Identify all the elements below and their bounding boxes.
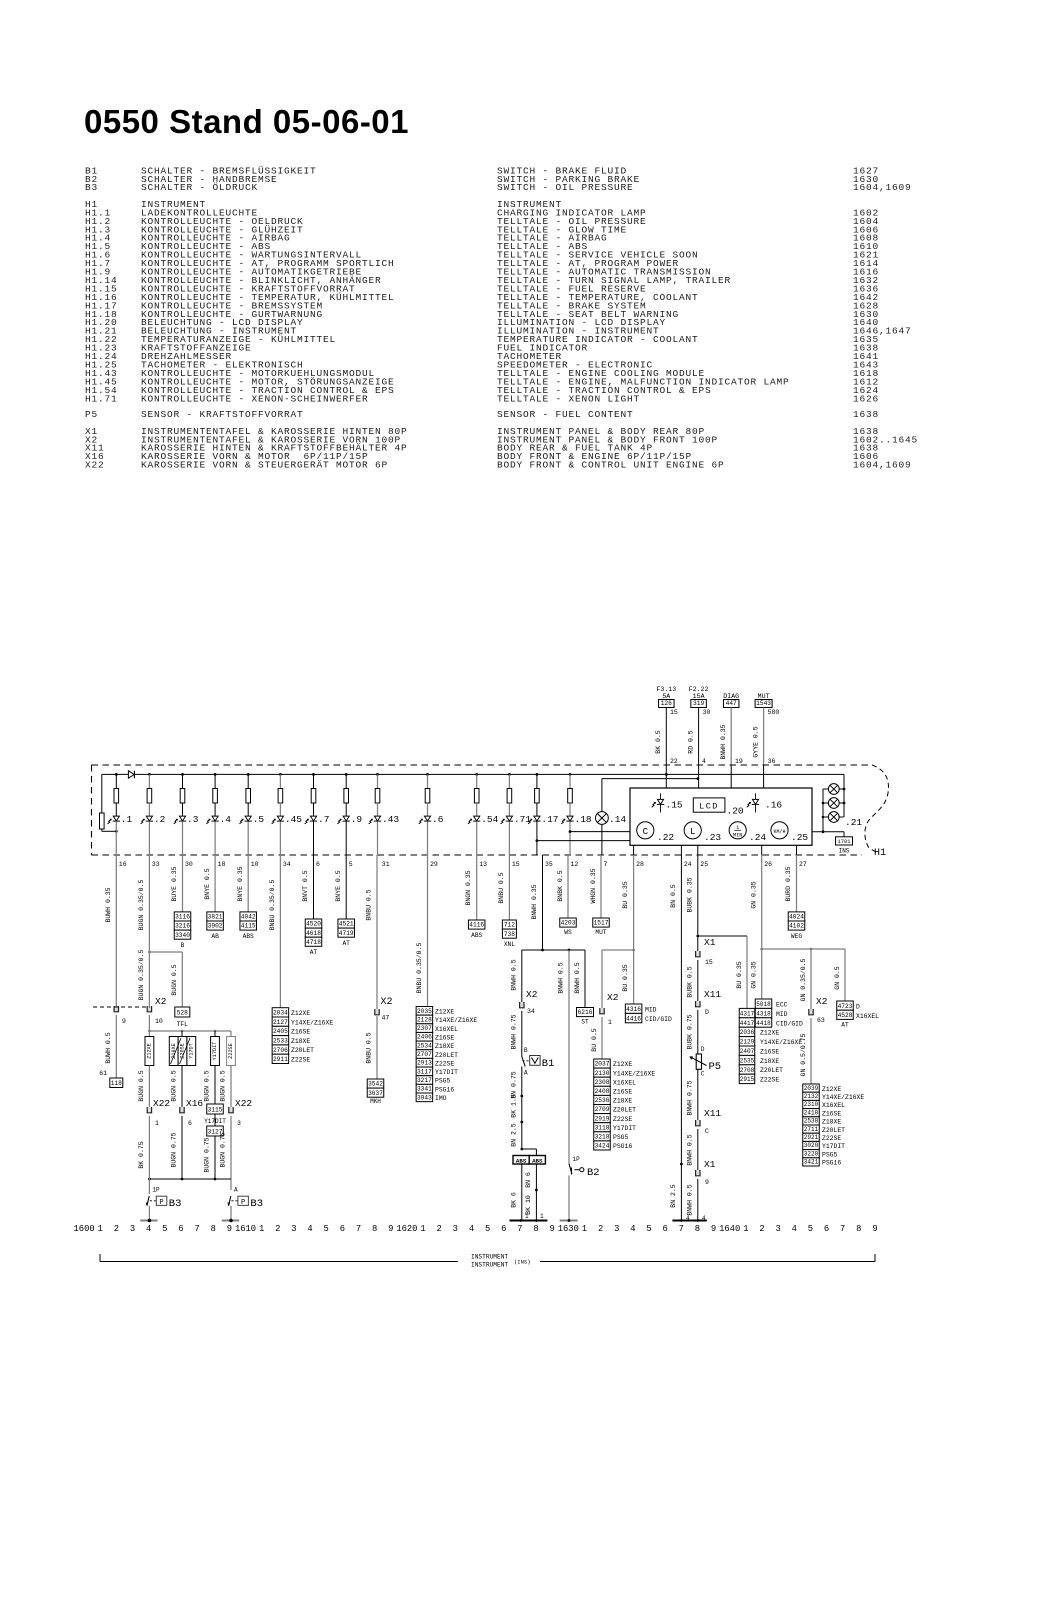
svg-text:4618: 4618 (306, 930, 321, 937)
svg-text:GYYE 0.5: GYYE 0.5 (753, 726, 760, 757)
svg-text:15: 15 (705, 959, 713, 966)
svg-text:BUYE 0.35: BUYE 0.35 (171, 866, 178, 901)
svg-text:BU 0.35: BU 0.35 (622, 964, 629, 991)
svg-text:2913: 2913 (417, 1060, 432, 1067)
svg-text:X2: X2 (816, 996, 828, 1007)
svg-text:2: 2 (114, 1224, 119, 1234)
svg-text:BNWH 0.75: BNWH 0.75 (687, 1080, 694, 1115)
svg-text:2: 2 (598, 1224, 603, 1234)
svg-text:.54: .54 (481, 814, 498, 825)
svg-text:2911: 2911 (273, 1056, 288, 1063)
svg-text:X16XEL: X16XEL (435, 1026, 458, 1033)
svg-text:Z20LET: Z20LET (435, 1052, 458, 1059)
svg-text:BK 10: BK 10 (525, 1195, 532, 1215)
svg-text:Z18XE: Z18XE (435, 1043, 454, 1050)
svg-text:Y14XE/Z16XE: Y14XE/Z16XE (760, 1039, 802, 1046)
svg-text:.25: .25 (791, 832, 808, 843)
svg-text:KM/H: KM/H (773, 829, 785, 835)
svg-text:X11: X11 (704, 989, 721, 1000)
svg-text:1640: 1640 (719, 1224, 740, 1234)
svg-text:2310: 2310 (804, 1101, 819, 1108)
svg-text:7: 7 (356, 1224, 361, 1234)
svg-text:6: 6 (340, 1224, 345, 1234)
svg-text:3218: 3218 (595, 1134, 610, 1141)
svg-text:CID/GID: CID/GID (776, 1020, 803, 1027)
svg-text:Y17DIT: Y17DIT (613, 1125, 636, 1132)
svg-text:2130: 2130 (595, 1070, 610, 1077)
svg-text:4: 4 (702, 758, 706, 765)
svg-text:4719: 4719 (339, 930, 354, 937)
svg-text:3637: 3637 (368, 1090, 383, 1097)
svg-text:712: 712 (504, 922, 515, 929)
svg-text:1: 1 (155, 1120, 159, 1127)
svg-text:(INS): (INS) (514, 1259, 531, 1266)
svg-text:GN 0.35/0.5: GN 0.35/0.5 (800, 958, 807, 1001)
svg-text:1620: 1620 (396, 1224, 417, 1234)
svg-text:4115: 4115 (241, 923, 256, 930)
svg-text:XNL: XNL (504, 941, 515, 948)
svg-text:X16XEL: X16XEL (613, 1079, 636, 1086)
svg-text:BNYE 0.35: BNYE 0.35 (237, 866, 244, 901)
svg-text:1: 1 (540, 1213, 544, 1220)
svg-text:24: 24 (684, 861, 692, 868)
svg-text:MUT: MUT (758, 693, 770, 700)
svg-text:2406: 2406 (417, 1034, 432, 1041)
svg-text:31: 31 (382, 861, 390, 868)
svg-text:Y17DIT: Y17DIT (212, 1042, 218, 1061)
svg-text:27: 27 (799, 861, 807, 868)
svg-text:BUGN 0.5: BUGN 0.5 (138, 1070, 145, 1101)
svg-text:.18: .18 (575, 814, 592, 825)
svg-text:3542: 3542 (368, 1081, 383, 1088)
svg-text:PSG16: PSG16 (613, 1143, 632, 1150)
svg-text:ECC: ECC (776, 1002, 788, 1009)
svg-text:0550 Stand 05-06-01: 0550 Stand 05-06-01 (84, 103, 409, 140)
svg-text:2410: 2410 (804, 1109, 819, 1116)
svg-text:BK 6: BK 6 (511, 1192, 518, 1208)
svg-text:4718: 4718 (306, 939, 321, 946)
svg-text:MIN: MIN (733, 833, 742, 839)
svg-text:1517: 1517 (594, 920, 609, 927)
svg-text:.9: .9 (351, 814, 363, 825)
svg-text:3020: 3020 (804, 1142, 819, 1149)
svg-text:33: 33 (152, 861, 160, 868)
svg-text:.45: .45 (285, 814, 302, 825)
svg-text:Z22SE: Z22SE (613, 1116, 632, 1123)
svg-text:BUGN 0.75: BUGN 0.75 (220, 1132, 227, 1167)
svg-text:Z22SE: Z22SE (291, 1057, 310, 1064)
svg-text:Z16SE: Z16SE (435, 1034, 454, 1041)
svg-text:BNWH 0.5: BNWH 0.5 (558, 962, 565, 993)
svg-text:3943: 3943 (417, 1094, 432, 1101)
svg-text:SWITCH - OIL PRESSURE: SWITCH - OIL PRESSURE (497, 182, 634, 193)
svg-text:4116: 4116 (469, 922, 484, 929)
svg-text:L: L (690, 827, 695, 837)
svg-text:2127: 2127 (273, 1019, 288, 1026)
svg-text:WEG: WEG (791, 933, 802, 940)
svg-text:SENSOR - KRAFTSTOFFVORRAT: SENSOR - KRAFTSTOFFVORRAT (141, 409, 304, 420)
svg-text:X16: X16 (186, 1098, 203, 1109)
svg-text:X2: X2 (155, 996, 167, 1007)
svg-text:Z22SE: Z22SE (228, 1043, 234, 1059)
svg-text:2: 2 (275, 1224, 280, 1234)
svg-text:1604,1609: 1604,1609 (853, 182, 912, 193)
svg-text:2707: 2707 (417, 1051, 432, 1058)
svg-text:BU 0.35: BU 0.35 (736, 961, 743, 988)
svg-text:36: 36 (768, 758, 776, 765)
svg-text:Z22SE: Z22SE (760, 1077, 779, 1084)
svg-text:4: 4 (469, 1224, 474, 1234)
svg-text:PSG16: PSG16 (435, 1086, 454, 1093)
svg-text:Z16SE: Z16SE (822, 1110, 841, 1117)
svg-text:BUWH 0.5: BUWH 0.5 (105, 1032, 112, 1063)
svg-text:MID: MID (645, 1007, 657, 1014)
svg-text:118: 118 (111, 1080, 122, 1087)
svg-text:580: 580 (768, 709, 780, 716)
svg-text:BNWH 0.5: BNWH 0.5 (687, 1184, 694, 1215)
svg-text:BUBK 0.5: BUBK 0.5 (687, 966, 694, 997)
svg-text:19: 19 (735, 758, 743, 765)
svg-text:Z12XE: Z12XE (822, 1086, 841, 1093)
svg-text:5018: 5018 (756, 1001, 771, 1008)
svg-text:5: 5 (324, 1224, 329, 1234)
svg-text:.3: .3 (187, 814, 199, 825)
svg-text:4528: 4528 (838, 1012, 853, 1019)
svg-text:PSG5: PSG5 (435, 1078, 451, 1085)
svg-text:GN 0.5/0.75: GN 0.5/0.75 (800, 1033, 807, 1076)
svg-text:4: 4 (307, 1224, 312, 1234)
svg-text:1543: 1543 (756, 700, 771, 707)
svg-text:RD 0.5: RD 0.5 (688, 730, 695, 754)
svg-text:X2: X2 (381, 997, 393, 1008)
svg-text:B2: B2 (587, 1167, 600, 1179)
svg-text:H1: H1 (874, 848, 886, 859)
svg-text:BN 2.5: BN 2.5 (670, 1184, 677, 1208)
svg-text:BUGN 0.5: BUGN 0.5 (204, 1070, 211, 1101)
svg-text:2709: 2709 (595, 1106, 610, 1113)
svg-text:.15: .15 (666, 800, 683, 811)
svg-text:7: 7 (604, 861, 608, 868)
svg-text:2034: 2034 (273, 1010, 288, 1017)
svg-text:Z20LET: Z20LET (291, 1047, 314, 1054)
svg-text:IMO: IMO (435, 1095, 447, 1102)
svg-text:.20: .20 (727, 806, 744, 817)
svg-text:738: 738 (504, 931, 515, 938)
svg-text:Y17DT: Y17DT (189, 1043, 195, 1059)
svg-text:.16: .16 (765, 800, 782, 811)
svg-text:2407: 2407 (740, 1048, 755, 1055)
svg-text:AT: AT (342, 940, 350, 947)
svg-text:9: 9 (388, 1224, 393, 1234)
svg-text:ABS: ABS (516, 1157, 527, 1164)
svg-text:.23: .23 (704, 832, 721, 843)
svg-text:F2.22: F2.22 (689, 686, 709, 693)
svg-text:4102: 4102 (789, 923, 804, 930)
svg-text:BNWH 0.5: BNWH 0.5 (687, 1134, 694, 1165)
svg-text:3116: 3116 (175, 914, 190, 921)
svg-text:6: 6 (316, 861, 320, 868)
svg-text:B3: B3 (250, 1198, 263, 1210)
svg-text:2534: 2534 (417, 1042, 432, 1049)
svg-text:61: 61 (99, 1070, 107, 1077)
svg-text:.21: .21 (845, 817, 862, 828)
svg-text:1: 1 (743, 1224, 748, 1234)
svg-text:1: 1 (525, 1213, 529, 1220)
svg-text:6: 6 (662, 1224, 667, 1234)
svg-text:TELLTALE - XENON LIGHT: TELLTALE - XENON LIGHT (497, 393, 640, 404)
svg-text:Z16SE: Z16SE (613, 1089, 632, 1096)
svg-text:GN 0.35: GN 0.35 (751, 881, 758, 908)
svg-text:BUGN 0.75: BUGN 0.75 (171, 1132, 178, 1167)
svg-text:BUGN 0.35/0.5: BUGN 0.35/0.5 (138, 950, 145, 1001)
svg-text:Z20LET: Z20LET (613, 1107, 636, 1114)
svg-text:BNVT 0.5: BNVT 0.5 (302, 870, 309, 901)
svg-text:.22: .22 (657, 832, 674, 843)
svg-text:5: 5 (485, 1224, 490, 1234)
svg-text:18: 18 (218, 861, 226, 868)
svg-text:6: 6 (824, 1224, 829, 1234)
svg-text:Y17DIT: Y17DIT (822, 1143, 845, 1150)
svg-text:Z20LET: Z20LET (760, 1067, 783, 1074)
svg-text:6: 6 (178, 1224, 183, 1234)
svg-text:8: 8 (695, 1224, 700, 1234)
svg-text:X22: X22 (235, 1098, 252, 1109)
svg-text:BK 1.5: BK 1.5 (511, 1094, 518, 1118)
svg-text:22: 22 (670, 758, 678, 765)
svg-text:6216: 6216 (578, 1009, 593, 1016)
svg-text:BN 6: BN 6 (525, 1172, 532, 1188)
svg-text:BN 2.5: BN 2.5 (511, 1123, 518, 1147)
svg-text:5: 5 (808, 1224, 813, 1234)
svg-text:2039: 2039 (804, 1085, 819, 1092)
svg-text:A: A (234, 1187, 238, 1194)
svg-text:2538: 2538 (804, 1118, 819, 1125)
svg-text:TFL: TFL (177, 1021, 188, 1028)
svg-text:.43: .43 (382, 814, 399, 825)
svg-text:BNWH 0.75: BNWH 0.75 (511, 1014, 518, 1049)
svg-text:BNBU 0.35/0.5: BNBU 0.35/0.5 (269, 880, 276, 931)
svg-text:Z12XE: Z12XE (291, 1010, 310, 1017)
svg-text:3: 3 (775, 1224, 780, 1234)
svg-text:1610: 1610 (235, 1224, 256, 1234)
svg-text:P: P (159, 1199, 163, 1207)
svg-text:.6: .6 (432, 814, 444, 825)
svg-text:INS: INS (839, 848, 850, 855)
svg-text:Z12XE: Z12XE (147, 1043, 153, 1059)
svg-text:1630: 1630 (558, 1224, 579, 1234)
svg-text:GN 0.35: GN 0.35 (751, 961, 758, 988)
svg-text:Z18XE: Z18XE (822, 1119, 841, 1126)
svg-text:7: 7 (679, 1224, 684, 1234)
svg-text:12: 12 (571, 861, 579, 868)
svg-text:2915: 2915 (740, 1076, 755, 1083)
svg-text:.4: .4 (220, 814, 232, 825)
svg-text:3424: 3424 (595, 1143, 610, 1150)
svg-text:5: 5 (349, 861, 353, 868)
svg-text:BUGN 0.75: BUGN 0.75 (204, 1137, 211, 1172)
svg-text:3: 3 (291, 1224, 296, 1234)
svg-text:BNWH 0.35: BNWH 0.35 (720, 724, 727, 759)
svg-text:1701: 1701 (838, 839, 851, 845)
svg-text:1: 1 (420, 1224, 425, 1234)
svg-text:4024: 4024 (789, 914, 804, 921)
svg-text:BUGN 0.5: BUGN 0.5 (220, 1070, 227, 1101)
svg-text:319: 319 (693, 700, 704, 707)
svg-text:ABS: ABS (471, 932, 482, 939)
svg-text:.2: .2 (154, 814, 166, 825)
svg-text:P: P (241, 1199, 245, 1207)
svg-text:2: 2 (437, 1224, 442, 1234)
svg-text:6: 6 (501, 1224, 506, 1234)
svg-text:528: 528 (177, 1010, 188, 1017)
svg-text:BUGN 0.35/0.5: BUGN 0.35/0.5 (138, 880, 145, 931)
svg-text:3341: 3341 (417, 1086, 432, 1093)
svg-text:BNGN 0.35: BNGN 0.35 (465, 870, 472, 905)
svg-text:2708: 2708 (740, 1067, 755, 1074)
svg-text:B: B (524, 1047, 528, 1054)
svg-text:3117: 3117 (417, 1068, 432, 1075)
svg-text:BNBU 0.5: BNBU 0.5 (366, 1032, 373, 1063)
svg-text:ABS: ABS (243, 933, 254, 940)
svg-text:8: 8 (372, 1224, 377, 1234)
svg-text:2129: 2129 (740, 1039, 755, 1046)
svg-text:3220: 3220 (804, 1150, 819, 1157)
svg-text:2308: 2308 (595, 1079, 610, 1086)
svg-text:ST: ST (581, 1019, 589, 1026)
svg-text:BUGN 0.5: BUGN 0.5 (171, 1070, 178, 1101)
svg-text:1638: 1638 (853, 409, 879, 420)
svg-text:Z18XE: Z18XE (760, 1058, 779, 1065)
svg-text:5: 5 (646, 1224, 651, 1234)
svg-text:9: 9 (872, 1224, 877, 1234)
svg-text:15A: 15A (693, 693, 705, 700)
svg-text:.17: .17 (541, 814, 558, 825)
svg-text:BNBU 0.5: BNBU 0.5 (498, 872, 505, 903)
svg-text:2035: 2035 (417, 1008, 432, 1015)
svg-text:Z20LET: Z20LET (822, 1127, 845, 1134)
svg-text:16: 16 (119, 861, 127, 868)
svg-text:KAROSSERIE VORN & STEUERGERÄT: KAROSSERIE VORN & STEUERGERÄT MOTOR 6P (141, 460, 388, 471)
svg-text:5: 5 (162, 1224, 167, 1234)
svg-text:SENSOR - FUEL CONTENT: SENSOR - FUEL CONTENT (497, 409, 634, 420)
svg-text:3: 3 (130, 1224, 135, 1234)
svg-text:LCD: LCD (699, 801, 719, 811)
svg-text:26: 26 (764, 861, 772, 868)
svg-text:4: 4 (792, 1224, 797, 1234)
svg-text:8: 8 (211, 1224, 216, 1234)
svg-text:.7: .7 (318, 814, 329, 825)
svg-text:1P: 1P (573, 1156, 581, 1163)
svg-text:C: C (705, 1128, 709, 1135)
svg-text:PSG5: PSG5 (822, 1151, 838, 1158)
svg-text:BUBK 0.35: BUBK 0.35 (687, 877, 694, 912)
svg-text:30: 30 (185, 861, 193, 868)
svg-text:2921: 2921 (804, 1134, 819, 1141)
svg-text:30: 30 (703, 709, 711, 716)
svg-text:10: 10 (155, 1018, 163, 1025)
svg-text:INSTRUMENT: INSTRUMENT (471, 1262, 508, 1269)
svg-text:AT: AT (310, 949, 318, 956)
svg-text:63: 63 (817, 1017, 825, 1024)
svg-text:AT: AT (841, 1022, 849, 1029)
svg-text:1626: 1626 (853, 393, 879, 404)
svg-text:4723: 4723 (838, 1003, 853, 1010)
svg-text:13: 13 (479, 861, 487, 868)
svg-text:X16XEL: X16XEL (856, 1013, 879, 1020)
svg-text:X2: X2 (526, 989, 538, 1000)
svg-text:10: 10 (251, 861, 259, 868)
svg-text:2037: 2037 (595, 1061, 610, 1068)
svg-text:PSG16: PSG16 (822, 1160, 841, 1167)
svg-text:47: 47 (382, 1015, 390, 1022)
svg-text:34: 34 (283, 861, 291, 868)
svg-text:4416: 4416 (626, 1015, 641, 1022)
svg-text:4: 4 (630, 1224, 635, 1234)
svg-text:29: 29 (430, 861, 438, 868)
svg-text:3: 3 (453, 1224, 458, 1234)
svg-text:X16XEL: X16XEL (822, 1102, 845, 1109)
svg-text:BNWH 0.35: BNWH 0.35 (531, 884, 538, 919)
svg-text:B3: B3 (85, 182, 98, 193)
svg-text:3340: 3340 (175, 932, 190, 939)
svg-text:BNYE 0.5: BNYE 0.5 (335, 870, 342, 901)
svg-text:F3.13: F3.13 (656, 686, 676, 693)
svg-text:Z16SE: Z16SE (291, 1029, 310, 1036)
svg-text:2533: 2533 (273, 1038, 288, 1045)
svg-text:1P: 1P (152, 1187, 160, 1194)
svg-text:C: C (643, 827, 649, 837)
svg-text:BUBK 0.75: BUBK 0.75 (687, 1014, 694, 1049)
svg-text:1: 1 (582, 1224, 587, 1234)
svg-text:2408: 2408 (595, 1088, 610, 1095)
svg-text:3: 3 (237, 1120, 241, 1127)
svg-text:1: 1 (259, 1224, 264, 1234)
svg-text:GN 0.5: GN 0.5 (834, 966, 841, 990)
svg-text:3: 3 (614, 1224, 619, 1234)
svg-text:P5: P5 (709, 1061, 722, 1073)
svg-text:B: B (181, 942, 185, 949)
svg-text:Z16SE: Z16SE (760, 1048, 779, 1055)
svg-text:8: 8 (533, 1224, 538, 1234)
svg-text:BODY FRONT & CONTROL UNIT ENGI: BODY FRONT & CONTROL UNIT ENGINE 6P (497, 460, 725, 471)
svg-text:MKH: MKH (370, 1098, 381, 1105)
svg-text:BNWH 0.5: BNWH 0.5 (511, 959, 518, 990)
svg-text:BNBU 0.35/0.5: BNBU 0.35/0.5 (416, 943, 423, 994)
svg-text:7: 7 (194, 1224, 199, 1234)
svg-text:D: D (856, 1004, 860, 1011)
svg-text:34: 34 (527, 1008, 535, 1015)
svg-text:5A: 5A (662, 693, 670, 700)
svg-text:Z12XE: Z12XE (613, 1061, 632, 1068)
svg-text:CID/GID: CID/GID (645, 1016, 672, 1023)
svg-text:1600: 1600 (74, 1224, 95, 1234)
svg-text:X22: X22 (85, 460, 105, 471)
svg-text:2919: 2919 (595, 1115, 610, 1122)
svg-text:KONTROLLEUCHTE - XENON-SCHEINW: KONTROLLEUCHTE - XENON-SCHEINWERFER (141, 393, 369, 404)
svg-text:X1: X1 (704, 937, 716, 948)
svg-text:BU 0.5: BU 0.5 (591, 1028, 598, 1052)
svg-text:2706: 2706 (273, 1047, 288, 1054)
svg-text:Z22SE: Z22SE (822, 1135, 841, 1142)
svg-text:Y17DIT: Y17DIT (204, 1118, 226, 1125)
svg-text:C: C (701, 1071, 705, 1078)
svg-text:35: 35 (545, 861, 553, 868)
svg-text:Y17DIT: Y17DIT (435, 1069, 458, 1076)
svg-text:ABS: ABS (532, 1157, 543, 1164)
svg-text:4417: 4417 (740, 1020, 755, 1027)
svg-text:15: 15 (670, 709, 678, 716)
svg-text:25: 25 (700, 861, 708, 868)
